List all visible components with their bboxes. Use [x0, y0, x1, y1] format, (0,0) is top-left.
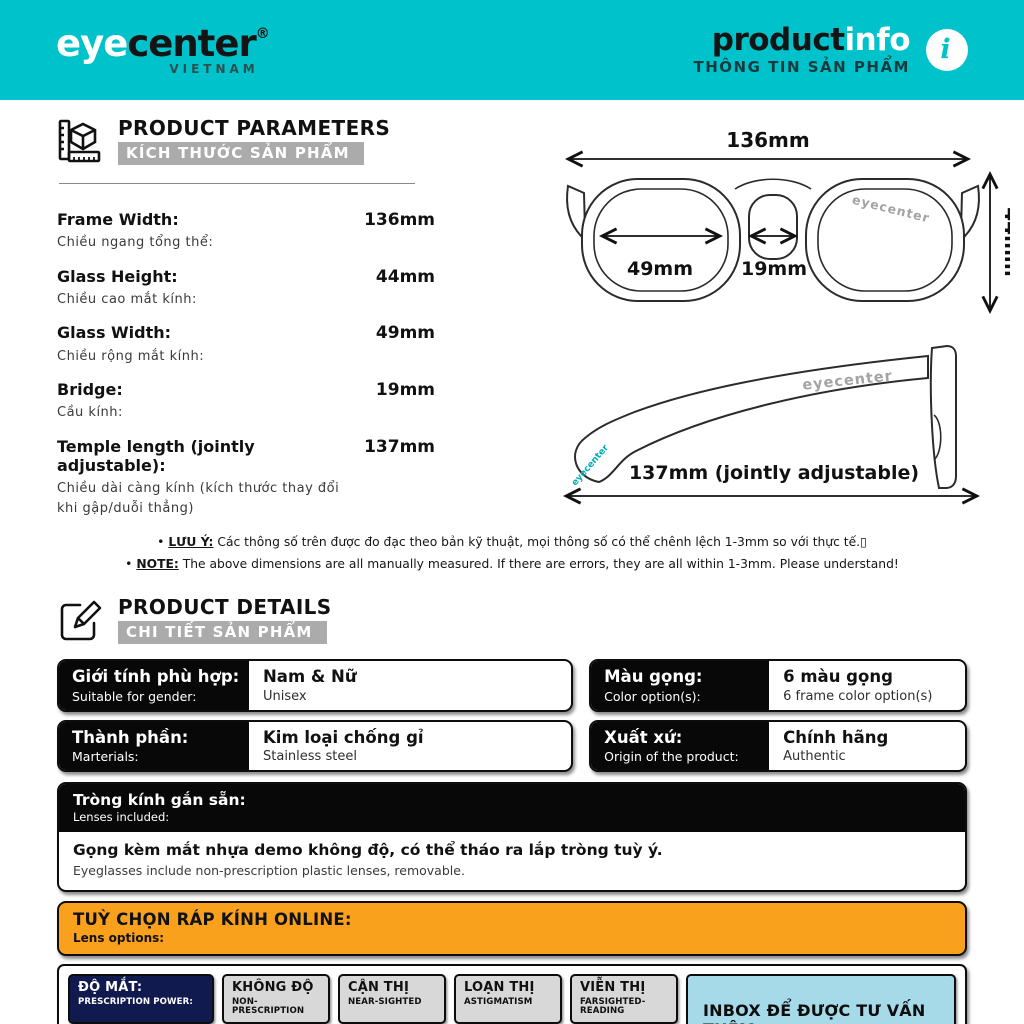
front-lens-label: 49mm: [627, 258, 693, 280]
registered-mark: ®: [256, 26, 269, 42]
param-sub: Chiều cao mắt kính:: [57, 290, 197, 310]
header-right: productinfo THÔNG TIN SẢN PHẨM i: [694, 24, 969, 75]
lenses-label: Tròng kính gắn sẵn:: [73, 791, 951, 809]
detail-cell-color: Màu gọng:Color option(s): 6 màu gọng6 fr…: [589, 659, 967, 712]
brand-logo: eyecenter® VIETNAM: [56, 25, 269, 76]
chip-near-sighted: CẬN THỊNEAR-SIGHTED: [338, 974, 446, 1024]
page-title-block: productinfo THÔNG TIN SẢN PHẨM: [694, 24, 911, 75]
pencil-note-icon: [57, 597, 103, 643]
chip-non-prescription: KHÔNG ĐỘNON-PRESCRIPTION: [222, 974, 330, 1024]
param-label: Glass Height:: [57, 267, 197, 286]
title-product: product: [712, 22, 845, 58]
param-value: 49mm: [376, 323, 435, 343]
detail-value: Chính hãng: [783, 728, 888, 749]
detail-label: Thành phần:: [72, 728, 243, 749]
param-value: 44mm: [376, 267, 435, 287]
lenses-included-box: Tròng kính gắn sẵn: Lenses included: Gọn…: [57, 782, 967, 892]
title-info: info: [845, 22, 910, 58]
param-value: 137mm: [364, 437, 435, 457]
notes: • LƯU Ý: Các thông số trên được đo đạc t…: [57, 532, 967, 575]
side-length-label: 137mm (jointly adjustable): [629, 462, 919, 484]
lenses-value: Gọng kèm mắt nhựa demo không độ, có thể …: [73, 841, 951, 859]
page-title: productinfo: [694, 24, 911, 57]
brand-eye: eye: [56, 22, 127, 65]
param-label: Temple length (jointly adjustable):: [57, 437, 356, 475]
param-sub: Chiều dài càng kính (kích thước thay đổi…: [57, 479, 356, 518]
detail-label-sub: Marterials:: [72, 749, 243, 764]
details-section-header: PRODUCT DETAILS CHI TIẾT SẢN PHẨM: [57, 596, 967, 644]
detail-value-sub: Stainless steel: [263, 749, 424, 764]
banner-subtitle: Lens options:: [73, 931, 951, 945]
param-label: Bridge:: [57, 380, 123, 399]
param-value: 136mm: [364, 210, 435, 230]
parameters-list: Frame Width:Chiều ngang tổng thể: 136mm …: [57, 210, 435, 518]
product-info-page: eyecenter® VIETNAM productinfo THÔNG TIN…: [0, 0, 1024, 1024]
param-row-frame-width: Frame Width:Chiều ngang tổng thể: 136mm: [57, 210, 435, 253]
detail-label-sub: Suitable for gender:: [72, 689, 243, 704]
detail-value: Nam & Nữ: [263, 667, 357, 688]
detail-value: Kim loại chống gỉ: [263, 728, 424, 749]
detail-cell-materials: Thành phần:Marterials: Kim loại chống gỉ…: [57, 720, 573, 773]
divider: [59, 183, 415, 184]
lenses-included-body: Gọng kèm mắt nhựa demo không độ, có thể …: [59, 832, 965, 890]
glasses-diagrams: 136mm 49mm 19mm eyecenter 44mm: [538, 129, 1010, 509]
details-title: PRODUCT DETAILS: [118, 596, 332, 618]
param-row-glass-width: Glass Width:Chiều rộng mắt kính: 49mm: [57, 323, 435, 366]
note-luu-y: • LƯU Ý: Các thông số trên được đo đạc t…: [57, 532, 967, 554]
inbox-title: INBOX ĐỂ ĐƯỢC TƯ VẤN THÊM: [703, 1001, 939, 1024]
param-row-bridge: Bridge:Cầu kính: 19mm: [57, 380, 435, 423]
lens-options-grid: ĐỘ MẮT:PRESCRIPTION POWER: KHÔNG ĐỘNON-P…: [57, 964, 967, 1024]
brand-wordmark: eyecenter®: [56, 25, 269, 62]
banner-title: TUỲ CHỌN RÁP KÍNH ONLINE:: [73, 910, 951, 929]
chip-farsighted: VIỄN THỊFARSIGHTED-READING: [570, 974, 678, 1024]
detail-label: Màu gọng:: [604, 667, 763, 688]
detail-label: Giới tính phù hợp:: [72, 667, 243, 688]
chip-prescription-power: ĐỘ MẮT:PRESCRIPTION POWER:: [68, 974, 214, 1024]
header: eyecenter® VIETNAM productinfo THÔNG TIN…: [0, 0, 1024, 100]
info-icon: i: [926, 29, 968, 71]
glasses-side-diagram: eyecenter eyecenter 137mm (jointly adjus…: [538, 327, 1010, 509]
main-content: PRODUCT PARAMETERS KÍCH THƯỚC SẢN PHẨM F…: [0, 117, 1024, 1024]
ruler-box-icon: [57, 118, 103, 166]
detail-label-sub: Origin of the product:: [604, 749, 763, 764]
detail-cell-origin: Xuất xứ:Origin of the product: Chính hãn…: [589, 720, 967, 773]
detail-value: 6 màu gọng: [783, 667, 932, 688]
brand-center: center: [127, 22, 255, 65]
detail-label: Xuất xứ:: [604, 728, 763, 749]
glasses-front-diagram: 136mm 49mm 19mm eyecenter 44mm: [538, 129, 1010, 323]
param-sub: Chiều rộng mắt kính:: [57, 347, 204, 367]
param-row-temple-length: Temple length (jointly adjustable):Chiều…: [57, 437, 435, 518]
lenses-label-sub: Lenses included:: [73, 810, 951, 824]
chip-astigmatism: LOẠN THỊASTIGMATISM: [454, 974, 562, 1024]
param-label: Frame Width:: [57, 210, 213, 229]
parameters-title: PRODUCT PARAMETERS: [118, 117, 390, 139]
detail-label-sub: Color option(s):: [604, 689, 763, 704]
lenses-included-header: Tròng kính gắn sẵn: Lenses included:: [59, 784, 965, 832]
param-sub: Chiều ngang tổng thể:: [57, 233, 213, 253]
detail-value-sub: 6 frame color option(s): [783, 689, 932, 704]
param-label: Glass Width:: [57, 323, 204, 342]
lens-options-banner: TUỲ CHỌN RÁP KÍNH ONLINE: Lens options:: [57, 901, 967, 956]
details-subtitle: CHI TIẾT SẢN PHẨM: [118, 621, 327, 644]
detail-cell-gender: Giới tính phù hợp:Suitable for gender: N…: [57, 659, 573, 712]
param-sub: Cầu kính:: [57, 403, 123, 423]
param-value: 19mm: [376, 380, 435, 400]
note-en: • NOTE: The above dimensions are all man…: [57, 554, 967, 576]
parameters-subtitle: KÍCH THƯỚC SẢN PHẨM: [118, 142, 364, 165]
front-height-label: 44mm: [1000, 207, 1010, 277]
param-row-glass-height: Glass Height:Chiều cao mắt kính: 44mm: [57, 267, 435, 310]
detail-value-sub: Authentic: [783, 749, 888, 764]
front-bridge-label: 19mm: [741, 258, 807, 280]
detail-value-sub: Unisex: [263, 689, 357, 704]
details-table: Giới tính phù hợp:Suitable for gender: N…: [57, 659, 967, 772]
front-width-label: 136mm: [726, 129, 809, 152]
inbox-cta: INBOX ĐỂ ĐƯỢC TƯ VẤN THÊM Please send me…: [686, 974, 956, 1024]
lenses-value-sub: Eyeglasses include non-prescription plas…: [73, 863, 951, 878]
page-subtitle: THÔNG TIN SẢN PHẨM: [694, 60, 911, 76]
